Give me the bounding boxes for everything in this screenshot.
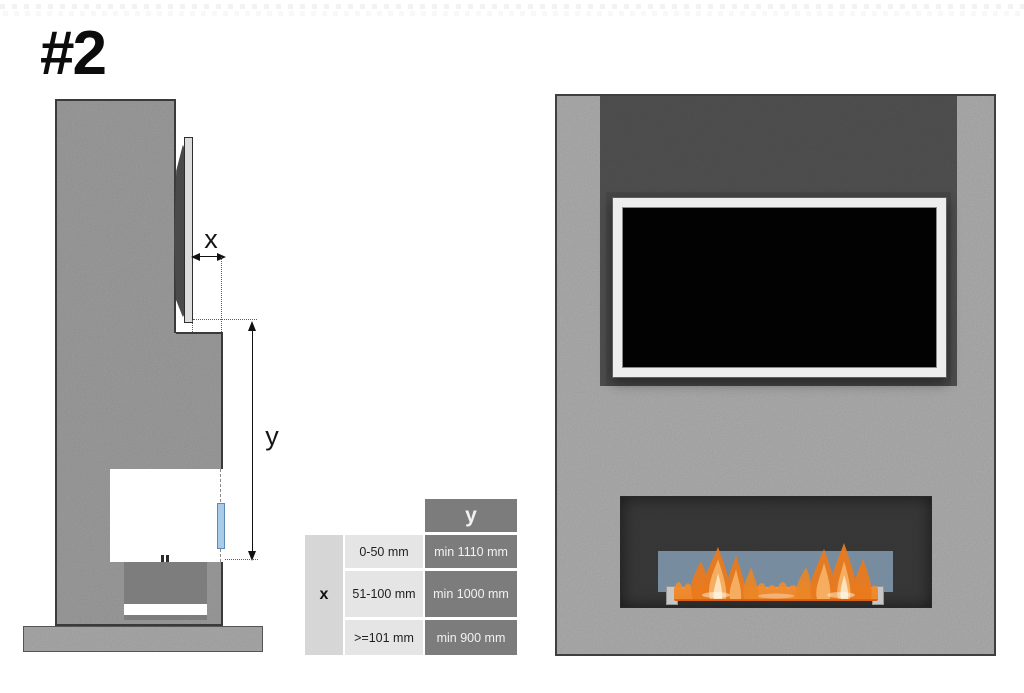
scan-artifact-strip: [0, 11, 1024, 16]
diagram-canvas: #2 x y y x 0-50 mm min 1110 mm 51-100 mm…: [0, 0, 1024, 693]
side-view-wall-upper: [55, 99, 176, 335]
side-view-burner-mark: [166, 555, 169, 562]
dimension-dotted-line: [193, 319, 257, 320]
dimension-x-arrowhead-left: [191, 253, 200, 261]
dimension-x-label: x: [197, 224, 225, 255]
side-view-burner-mark: [161, 555, 164, 562]
table-row-min-y: min 1000 mm: [425, 571, 517, 617]
page-title: #2: [40, 18, 105, 89]
table-row-range: 51-100 mm: [345, 571, 423, 617]
dimension-y-label: y: [258, 421, 286, 452]
dimension-y-arrowhead-top: [248, 321, 256, 331]
table-row-min-y: min 900 mm: [425, 620, 517, 655]
wall-texture: [57, 101, 174, 335]
scan-artifact-strip: [0, 4, 1024, 9]
table-header-x: x: [305, 535, 343, 655]
table-row-range: 0-50 mm: [345, 535, 423, 568]
dimension-dotted-line: [221, 257, 222, 332]
dimension-dotted-line: [192, 320, 193, 332]
side-view-firebox-stripe: [124, 604, 207, 615]
side-view-tv-panel: [184, 137, 193, 323]
table-row-range: >=101 mm: [345, 620, 423, 655]
table-row-min-y: min 1110 mm: [425, 535, 517, 568]
side-view-wall-ledge: [176, 332, 223, 334]
side-view-fireplace-opening: [110, 469, 223, 562]
side-view-firebox: [124, 562, 207, 620]
table-header-y: y: [425, 499, 517, 532]
dimension-y-line: [252, 324, 253, 558]
dimension-dotted-line: [225, 559, 258, 560]
flames-graphic: [656, 537, 896, 607]
side-view-base-plinth: [23, 626, 263, 652]
front-view-tv-frame: [612, 197, 947, 378]
side-view-glass-pane: [217, 503, 225, 549]
front-view-tv-screen: [622, 207, 937, 368]
base-texture: [24, 627, 262, 651]
